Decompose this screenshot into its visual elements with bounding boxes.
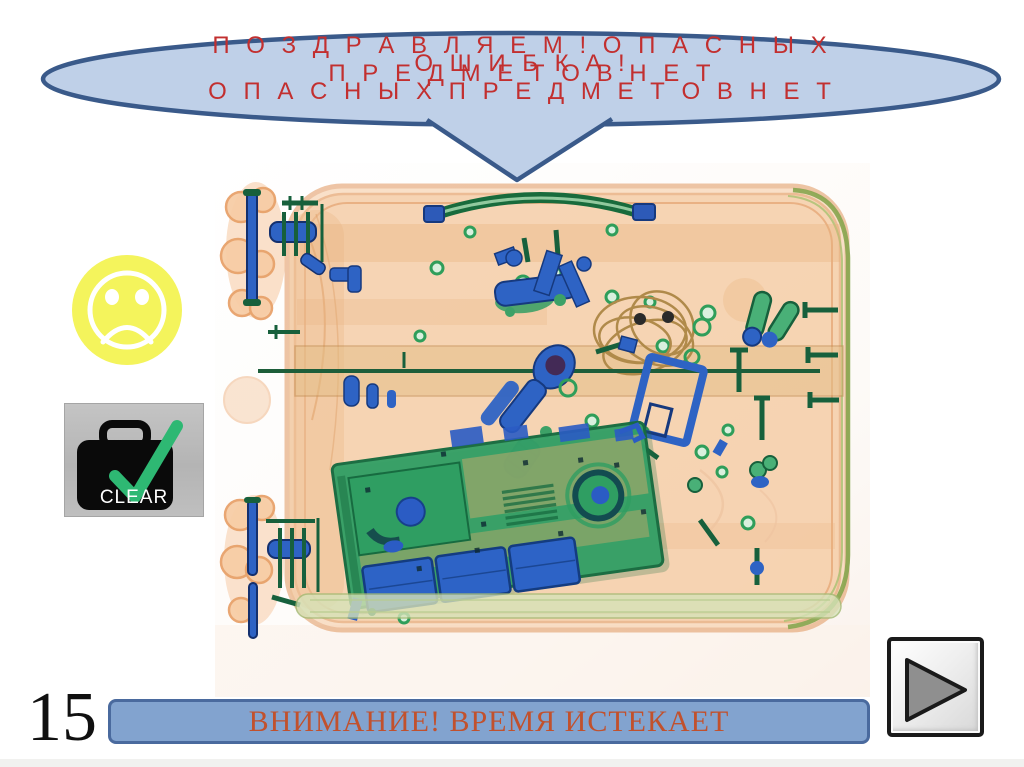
bottom-strip — [296, 594, 841, 618]
timer-value: 15 — [22, 682, 102, 754]
slide-edge-strip — [0, 759, 1024, 767]
warning-bar: ВНИМАНИЕ! ВРЕМЯ ИСТЕКАЕТ — [108, 699, 870, 744]
error-line1: О Ш И Б К А ! — [42, 50, 1002, 78]
error-message: О Ш И Б К А ! О П А С Н Ы Х П Р Е Д М Е … — [42, 50, 1002, 106]
clear-button[interactable]: CLEAR — [65, 404, 203, 516]
photo-lower-tint — [215, 625, 870, 697]
play-icon — [891, 650, 980, 730]
sad-face-icon — [72, 255, 182, 365]
clear-button-label: CLEAR — [65, 487, 203, 509]
xray-suitcase-image[interactable] — [215, 163, 870, 697]
error-line2: О П А С Н Ы Х П Р Е Д М Е Т О В Н Е Т — [42, 78, 1002, 106]
warning-text: ВНИМАНИЕ! ВРЕМЯ ИСТЕКАЕТ — [249, 705, 730, 739]
next-button[interactable] — [887, 637, 984, 737]
